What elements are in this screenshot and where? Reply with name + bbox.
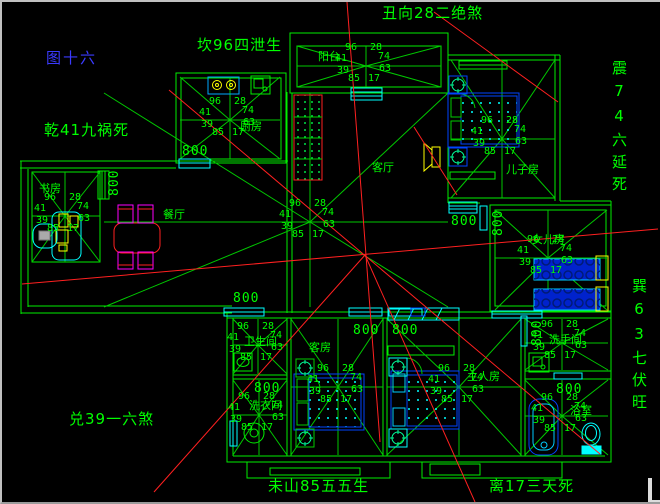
star-number-ml: 41 xyxy=(227,333,239,343)
room-label-guest: 客房 xyxy=(309,342,331,353)
dim-800-kitchen: 800 xyxy=(182,145,208,158)
room-label-living: 客厅 xyxy=(372,162,394,173)
star-number-mr: 74 xyxy=(350,373,362,383)
sink-icon xyxy=(251,76,270,94)
compass-label-right-lower: 巽63七伏旺 xyxy=(631,278,646,403)
star-number-ml: 41 xyxy=(199,108,211,118)
star-number-lr: 63 xyxy=(351,385,363,395)
dim-800-entry-v: 800 xyxy=(492,210,505,236)
star-number-ml: 41 xyxy=(34,204,46,214)
star-number-ml: 41 xyxy=(307,375,319,385)
star-number-lr: 63 xyxy=(575,414,587,424)
star-number-bl: 85 xyxy=(240,353,252,363)
balcony-window xyxy=(351,88,382,100)
light-fixture-icon xyxy=(449,148,467,166)
star-number-tl: 96 xyxy=(481,116,493,126)
star-number-mr: 74 xyxy=(322,208,334,218)
star-ray xyxy=(310,93,448,222)
star-number-lr: 63 xyxy=(243,118,255,128)
figure-label: 图十六 xyxy=(46,51,97,66)
star-number-mr: 74 xyxy=(471,373,483,383)
star-number-br: 17 xyxy=(461,395,473,405)
star-number-ml: 41 xyxy=(428,375,440,385)
compass-label-bottom-center: 未山85五五生 xyxy=(268,479,369,494)
star-number-br: 17 xyxy=(261,423,273,433)
star-number-bl: 85 xyxy=(348,74,360,84)
dim-800-master: 800 xyxy=(392,324,418,337)
star-number-tl: 96 xyxy=(289,199,301,209)
light-fixture-icon xyxy=(389,358,407,376)
star-number-bl: 85 xyxy=(241,423,253,433)
star-number-tl: 96 xyxy=(209,97,221,107)
room-label-son: 儿子房 xyxy=(506,164,539,175)
star-number-tl: 96 xyxy=(541,320,553,330)
star-number-tl: 96 xyxy=(238,392,250,402)
star-number-ml: 41 xyxy=(335,54,347,64)
kitchen-window xyxy=(179,159,210,168)
star-number-tl: 96 xyxy=(44,193,56,203)
desk-icon xyxy=(52,212,81,260)
washroom-window xyxy=(521,316,527,346)
floorplan-canvas[interactable]: 图十六 丑向28二绝煞 坎96四泄生 乾41九祸死 震74六延死 巽63七伏旺 … xyxy=(0,0,660,504)
star-number-mr: 74 xyxy=(574,329,586,339)
dim-800-study: 800 xyxy=(108,170,121,196)
star-number-br: 17 xyxy=(504,147,516,157)
star-number-mr: 74 xyxy=(378,52,390,62)
star-number-bl: 85 xyxy=(544,351,556,361)
star-number-br: 17 xyxy=(564,424,576,434)
star-number-ml: 41 xyxy=(279,210,291,220)
dim-800-guest: 800 xyxy=(353,324,379,337)
star-number-bl: 85 xyxy=(544,424,556,434)
star-ray xyxy=(104,222,310,307)
star-number-mr: 74 xyxy=(270,331,282,341)
star-number-br: 17 xyxy=(550,266,562,276)
compass-label-bottom-right: 离17三天死 xyxy=(489,479,574,494)
star-number-tl: 96 xyxy=(527,235,539,245)
star-number-mr: 74 xyxy=(242,106,254,116)
stove-icon xyxy=(208,77,239,94)
compass-label-right-upper: 震74六延死 xyxy=(611,60,626,175)
star-number-tl: 96 xyxy=(237,322,249,332)
star-number-lr: 63 xyxy=(472,385,484,395)
star-number-bl: 85 xyxy=(47,224,59,234)
star-number-ml: 41 xyxy=(228,403,240,413)
star-number-mr: 74 xyxy=(77,202,89,212)
star-number-bl: 85 xyxy=(530,266,542,276)
star-number-ml: 41 xyxy=(531,331,543,341)
dim-800-entry: 800 xyxy=(451,215,477,228)
star-number-mr: 74 xyxy=(271,401,283,411)
star-number-br: 17 xyxy=(232,128,244,138)
star-number-bl: 85 xyxy=(484,147,496,157)
star-number-br: 17 xyxy=(340,395,352,405)
star-number-br: 17 xyxy=(564,351,576,361)
toilet-icon xyxy=(582,423,601,454)
star-number-lr: 63 xyxy=(515,137,527,147)
sofa xyxy=(294,95,322,180)
light-fixture-icon xyxy=(449,76,467,94)
star-number-lr: 63 xyxy=(561,256,573,266)
star-number-br: 17 xyxy=(260,353,272,363)
star-number-lr: 63 xyxy=(575,341,587,351)
dining-chairs xyxy=(118,205,153,269)
star-number-bl: 85 xyxy=(441,395,453,405)
scrollbar-corner-2 xyxy=(648,500,660,503)
room-label-dining: 餐厅 xyxy=(163,209,185,220)
bathroom-door xyxy=(554,373,582,379)
star-number-br: 17 xyxy=(312,230,324,240)
star-number-br: 17 xyxy=(368,74,380,84)
entry-cabinet xyxy=(449,202,477,213)
star-number-ml: 41 xyxy=(471,127,483,137)
star-number-mr: 74 xyxy=(514,125,526,135)
star-number-lr: 63 xyxy=(78,214,90,224)
star-number-mr: 74 xyxy=(574,402,586,412)
star-number-tl: 96 xyxy=(317,364,329,374)
star-number-bl: 85 xyxy=(320,395,332,405)
corridor-windows xyxy=(224,308,542,318)
star-number-lr: 63 xyxy=(272,413,284,423)
star-number-tl: 96 xyxy=(345,43,357,53)
star-number-bl: 85 xyxy=(292,230,304,240)
compass-label-bottom-left: 兑39一六煞 xyxy=(69,412,154,427)
star-number-lr: 63 xyxy=(271,343,283,353)
dining-table xyxy=(114,223,160,253)
light-fixture-icon xyxy=(389,429,407,447)
compass-label-top-left: 坎96四泄生 xyxy=(197,38,282,53)
star-number-tl: 96 xyxy=(541,393,553,403)
compass-label-left: 乾41九祸死 xyxy=(44,123,129,138)
entry-door xyxy=(480,206,487,230)
star-number-br: 17 xyxy=(67,224,79,234)
star-number-lr: 63 xyxy=(323,220,335,230)
compass-label-top: 丑向28二绝煞 xyxy=(382,6,483,21)
dim-800-corridor: 800 xyxy=(233,292,259,305)
star-number-ml: 41 xyxy=(517,246,529,256)
star-number-mr: 74 xyxy=(560,244,572,254)
star-number-ml: 41 xyxy=(531,404,543,414)
star-number-tl: 96 xyxy=(438,364,450,374)
star-number-bl: 85 xyxy=(212,128,224,138)
star-number-lr: 63 xyxy=(379,64,391,74)
